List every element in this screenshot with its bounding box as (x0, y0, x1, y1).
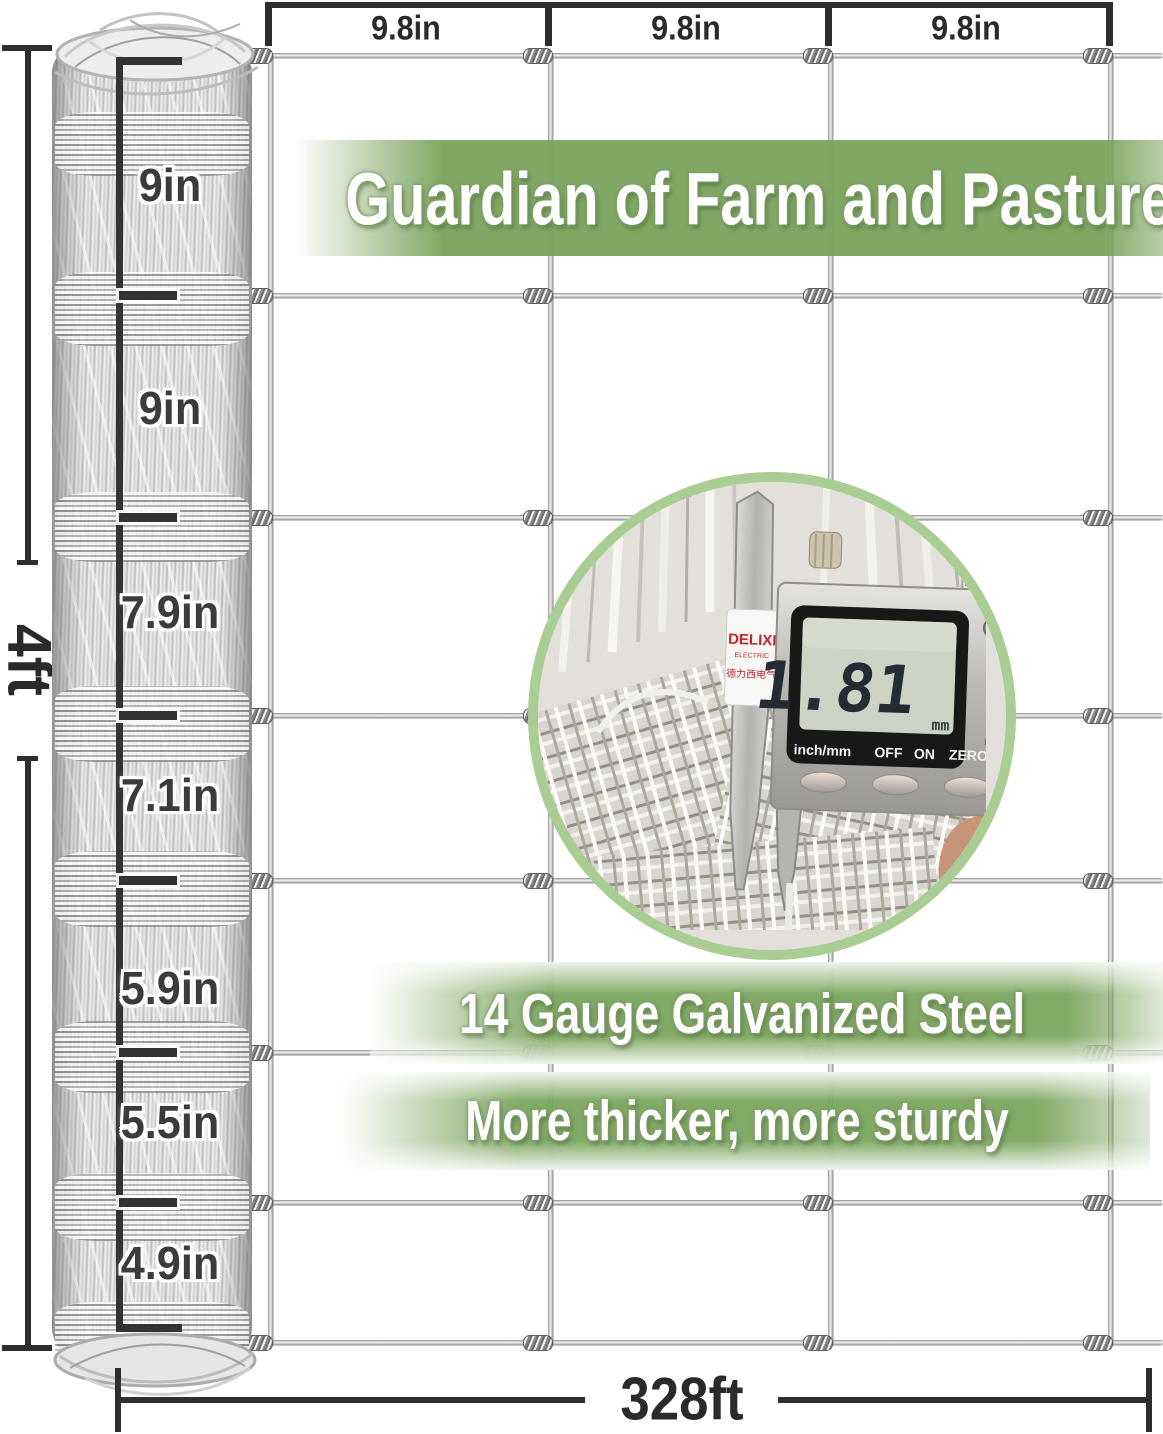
measured-wire (787, 883, 789, 930)
feature-text-2: More thicker, more sturdy (465, 1088, 1009, 1154)
wire-knot (1083, 48, 1113, 64)
column-spacing-label: 9.8in (931, 10, 1001, 49)
feature-text-1: 14 Gauge Galvanized Steel (459, 981, 1025, 1047)
label-on: ON (914, 745, 936, 762)
bracket-top-corner (116, 57, 182, 65)
product-infographic: 9.8in9.8in9.8in 4ft 9in9in7.9in7.1in5.9i… (0, 0, 1163, 1434)
top-dimension-line (266, 2, 1113, 8)
row-spacing-label: 9in (139, 158, 201, 212)
fence-horizontal-wire (230, 293, 1163, 298)
wire-knot (1083, 873, 1113, 889)
height-dim-gap-dash-top (17, 560, 38, 565)
wire-knot (523, 1195, 553, 1211)
caliper-lock-screw (809, 532, 842, 569)
column-spacing-label: 9.8in (651, 10, 721, 49)
roll-wrap-band (55, 1021, 249, 1093)
bracket-bottom-corner (116, 1324, 182, 1332)
top-dim-tick (545, 2, 552, 46)
length-dim-right-tick (1146, 1368, 1152, 1432)
length-dim-line-left (118, 1397, 585, 1403)
roll-top-wire-tangle (40, 12, 270, 122)
headline-text: Guardian of Farm and Pasture (345, 157, 1163, 242)
length-dimension-label: 328ft (620, 1365, 743, 1434)
wire-knot (1083, 510, 1113, 526)
lcd-unit: mm (931, 716, 950, 735)
fence-horizontal-wire (230, 1340, 1163, 1345)
lcd-value: 1.81 (751, 647, 921, 729)
length-dim-line-right (778, 1397, 1148, 1403)
row-spacing-label: 5.5in (121, 1095, 220, 1149)
wire-knot (803, 1195, 833, 1211)
wire-knot (1083, 1195, 1113, 1211)
row-spacing-label: 5.9in (121, 961, 220, 1015)
wire-knot (523, 48, 553, 64)
bracket-tick (119, 1048, 177, 1057)
top-dim-tick (825, 2, 832, 46)
height-dim-line-upper (25, 48, 31, 562)
wire-knot (1083, 1335, 1113, 1351)
roll-wrap-band (55, 851, 249, 927)
fence-horizontal-wire (230, 53, 1163, 58)
wire-knot (523, 288, 553, 304)
wire-knot (523, 510, 553, 526)
row-spacing-label: 9in (139, 381, 201, 435)
row-spacing-label: 4.9in (121, 1236, 220, 1290)
height-dim-line-lower (25, 760, 31, 1348)
roll-wrap-band (55, 686, 249, 762)
row-spacing-label: 7.9in (121, 585, 220, 639)
fence-vertical-wire (268, 53, 273, 1346)
bracket-tick (119, 711, 177, 720)
roll-wrap-band (55, 272, 249, 346)
bracket-tick (119, 513, 177, 522)
fence-roll-photo (52, 26, 252, 1380)
label-zero: ZERO (949, 747, 986, 764)
roll-wrap-band (55, 492, 249, 562)
fence-horizontal-wire (230, 1200, 1163, 1205)
wire-knot (803, 1335, 833, 1351)
caliper-inset-photo: DELIXI ELECTRIC 德力西电气 1.81 mm inch/mm OF… (528, 472, 1016, 960)
row-spacing-label: 7.1in (121, 768, 220, 822)
bracket-tick (119, 876, 177, 885)
wire-knot (1083, 708, 1113, 724)
bracket-tick (119, 1198, 177, 1207)
wire-knot (523, 873, 553, 889)
label-inch-mm: inch/mm (793, 741, 851, 759)
wire-knot (803, 48, 833, 64)
wire-knot (803, 288, 833, 304)
roll-wrap-band (55, 1173, 249, 1241)
wire-knot (523, 1335, 553, 1351)
top-dim-tick (1106, 2, 1113, 46)
wire-knot (1083, 288, 1113, 304)
label-off: OFF (874, 744, 903, 761)
column-spacing-label: 9.8in (371, 10, 441, 49)
bracket-tick (119, 291, 177, 300)
